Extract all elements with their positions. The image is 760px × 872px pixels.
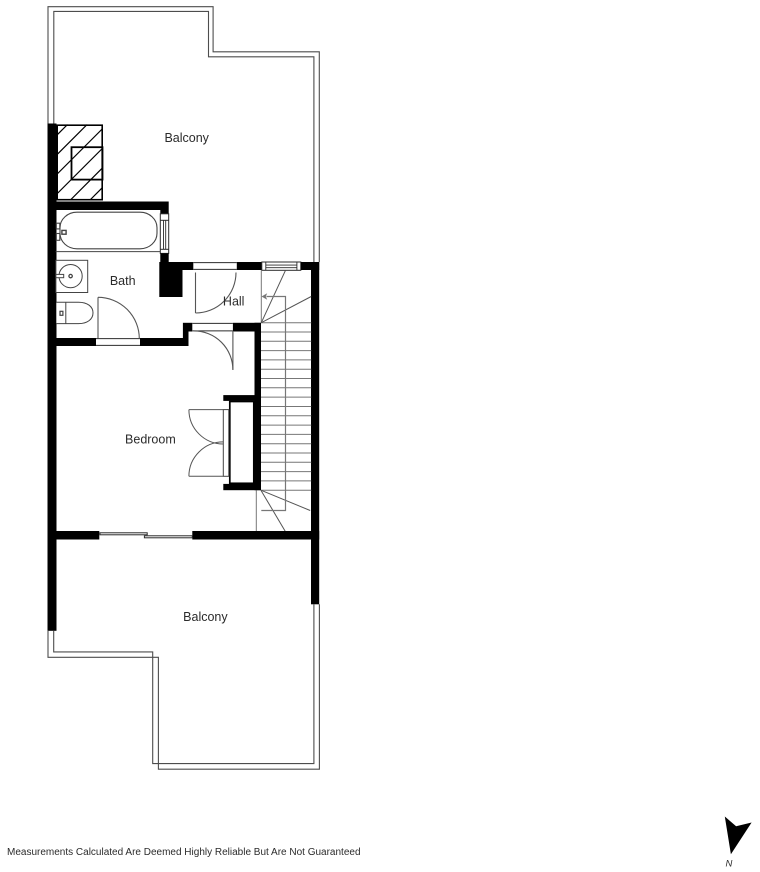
svg-text:Measurements Calculated Are De: Measurements Calculated Are Deemed Highl… [7, 847, 361, 858]
svg-text:Balcony: Balcony [164, 131, 209, 145]
svg-text:Hall: Hall [223, 294, 245, 308]
svg-text:Bath: Bath [110, 274, 136, 288]
svg-text:N: N [726, 859, 733, 870]
svg-text:Balcony: Balcony [183, 610, 228, 624]
svg-text:Bedroom: Bedroom [125, 433, 176, 447]
